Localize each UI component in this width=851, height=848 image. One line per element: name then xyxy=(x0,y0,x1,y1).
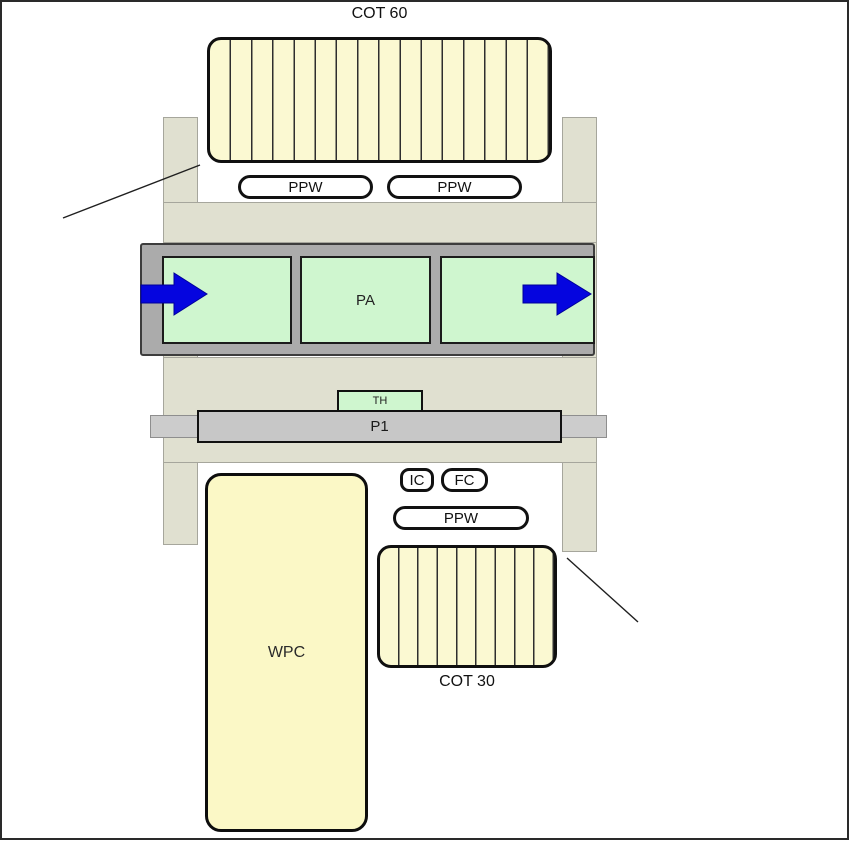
p1-label: P1 xyxy=(370,418,388,435)
conveyor-cell-inlet xyxy=(162,256,292,344)
ic-label: IC xyxy=(410,472,425,489)
cot30-label: COT 30 xyxy=(377,673,557,691)
p1-shaft-left xyxy=(150,415,200,438)
ic-unit: IC xyxy=(400,468,434,492)
ppw-unit-bottom-label: PPW xyxy=(444,510,478,527)
ppw-unit-top-right: PPW xyxy=(387,175,522,199)
th-unit: TH xyxy=(337,390,423,412)
ppw-unit-bottom: PPW xyxy=(393,506,529,530)
p1-plate: P1 xyxy=(197,410,562,443)
cot30-roll-stack xyxy=(377,545,557,668)
ppw-unit-top-left: PPW xyxy=(238,175,373,199)
ppw-unit-top-right-label: PPW xyxy=(437,179,471,196)
frame-crossband-upper xyxy=(163,202,597,243)
wpc-label: WPC xyxy=(268,644,305,662)
fc-label: FC xyxy=(455,472,475,489)
ppw-unit-top-left-label: PPW xyxy=(288,179,322,196)
conveyor-cell-pa: PA xyxy=(300,256,431,344)
machine-layout-diagram: COT 60 PPW PPW PA TH P1 IC FC PPW WPC CO… xyxy=(0,0,851,848)
p1-shaft-right xyxy=(561,415,607,438)
conveyor-cell-outlet xyxy=(440,256,595,344)
cot60-label: COT 60 xyxy=(207,5,552,23)
fc-unit: FC xyxy=(441,468,488,492)
wpc-unit: WPC xyxy=(205,473,368,832)
cot60-roll-stack xyxy=(207,37,552,163)
pa-label: PA xyxy=(356,292,375,309)
th-label: TH xyxy=(373,395,388,407)
